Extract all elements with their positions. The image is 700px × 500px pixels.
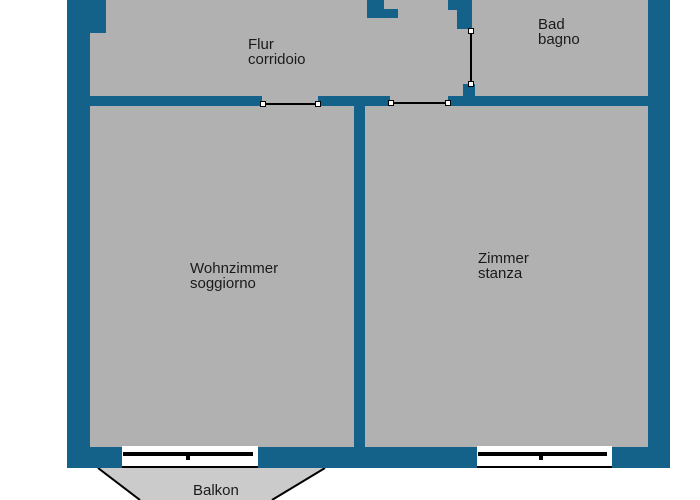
room-label-flur-it: corridoio bbox=[248, 52, 306, 67]
wall-left bbox=[67, 0, 90, 468]
door-hinge-wohnzimmer-left bbox=[260, 101, 266, 107]
room-label-balkon-de: Balkon bbox=[193, 483, 239, 498]
window-wohnzimmer bbox=[122, 446, 258, 468]
window-wohnzimmer-mullion bbox=[186, 452, 190, 460]
room-label-flur-de: Flur bbox=[248, 37, 306, 52]
door-hinge-zimmer-right bbox=[445, 100, 451, 106]
room-label-zimmer-it: stanza bbox=[478, 266, 529, 281]
wall-bottom-middle-segment bbox=[258, 447, 477, 468]
window-zimmer bbox=[477, 446, 612, 468]
wall-corridor-south-left bbox=[90, 96, 262, 106]
door-hinge-wohnzimmer-right bbox=[315, 101, 321, 107]
door-hinge-zimmer-left bbox=[388, 100, 394, 106]
wall-bottom-right-segment bbox=[612, 447, 670, 468]
wall-bottom-left-segment bbox=[90, 447, 122, 468]
wall-stub-bad-jamb-top bbox=[457, 0, 472, 29]
room-label-bad-de: Bad bbox=[538, 17, 580, 32]
door-line-bad bbox=[470, 31, 472, 84]
room-label-bad: Bad bagno bbox=[538, 17, 580, 47]
room-label-wohnzimmer: Wohnzimmer soggiorno bbox=[190, 261, 278, 291]
door-line-zimmer bbox=[391, 102, 448, 104]
room-label-balkon: Balkon bbox=[193, 483, 239, 498]
door-hinge-bad-bottom bbox=[468, 81, 474, 87]
room-label-zimmer: Zimmer stanza bbox=[478, 251, 529, 281]
window-zimmer-mullion bbox=[539, 452, 543, 460]
room-label-bad-it: bagno bbox=[538, 32, 580, 47]
wall-room-divider bbox=[354, 96, 365, 447]
room-label-flur: Flur corridoio bbox=[248, 37, 306, 67]
wall-stub-top-left-a bbox=[367, 0, 384, 9]
wall-left-pier bbox=[90, 0, 106, 33]
wall-right bbox=[648, 0, 670, 468]
floor-base bbox=[90, 0, 648, 447]
wall-stub-top-left-b bbox=[367, 9, 398, 18]
door-hinge-bad-top bbox=[468, 28, 474, 34]
wall-corridor-south-right bbox=[448, 96, 648, 106]
room-label-wohnzimmer-it: soggiorno bbox=[190, 276, 278, 291]
room-label-zimmer-de: Zimmer bbox=[478, 251, 529, 266]
door-line-wohnzimmer bbox=[263, 103, 318, 105]
floorplan-canvas: Flur corridoio Bad bagno Wohnzimmer sogg… bbox=[0, 0, 700, 500]
room-label-wohnzimmer-de: Wohnzimmer bbox=[190, 261, 278, 276]
